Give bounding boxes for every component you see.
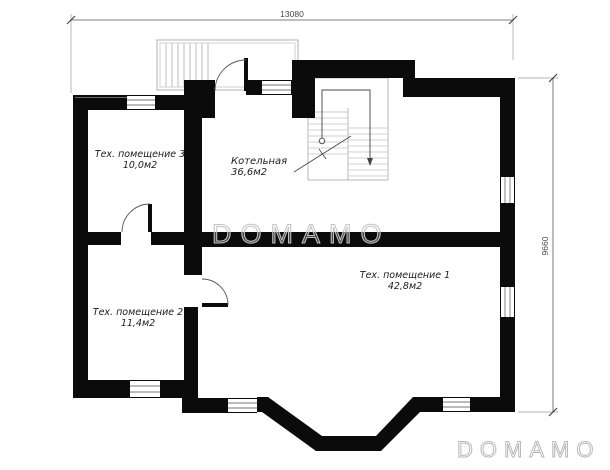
window-room3-top [127,96,155,109]
stair-treads-right [348,128,388,176]
wall-interior-vertical-upper [184,110,202,275]
window-right-upper [501,177,514,203]
wall-entry-right-jamb [246,80,261,95]
window-bottom-right [443,398,470,411]
window-right-lower [501,287,514,317]
stair-treads-left [308,118,348,154]
door-room3-room2 [122,204,152,232]
floor-plan-canvas: 13080 9660 Тех. помещение 3 10,0м2 Котел… [0,0,610,470]
interior-staircase [308,78,388,180]
window-hall-top [262,81,291,94]
door-entrance [215,58,248,91]
window-bottom-mid [228,399,257,412]
dimension-right [518,74,558,416]
window-room2-bottom [130,381,160,397]
wall-bay-window [257,397,440,451]
wall-room2-top-right [151,232,184,245]
wall-middle-horizontal [184,232,513,247]
wall-top-right [403,78,515,97]
wall-left [73,95,88,398]
wall-top-main [292,60,415,78]
wall-room2-top-left [88,232,121,245]
door-room2-room1 [202,279,228,307]
floor-plan-drawing [0,0,610,470]
wall-interior-vertical-lower [184,307,198,398]
